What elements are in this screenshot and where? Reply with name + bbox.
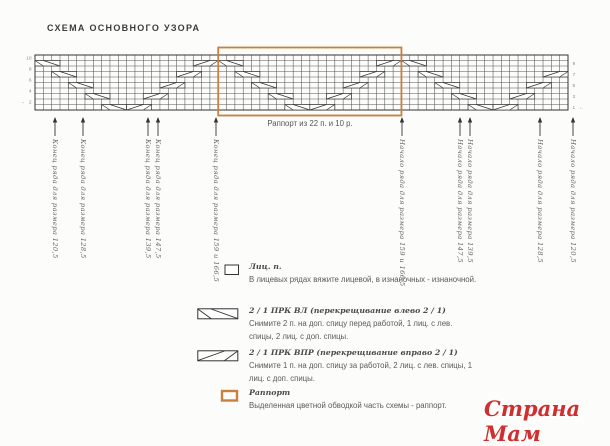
svg-text:←: ← bbox=[579, 106, 584, 111]
size-marker-label: Конец ряда для размера 159 и 166,5 bbox=[212, 139, 220, 282]
size-marker-label: Начало ряда для размера 128,5 bbox=[536, 139, 544, 263]
legend-desc: В лицевых рядах вяжите лицевой, в изнано… bbox=[249, 274, 477, 287]
site-watermark: Страна Мам bbox=[484, 396, 610, 446]
legend-desc: Выделенная цветной обводкой часть схемы … bbox=[249, 400, 477, 413]
size-marker-label: Начало ряда для размера 147,5 bbox=[456, 139, 464, 263]
svg-text:2: 2 bbox=[29, 100, 32, 106]
svg-text:5: 5 bbox=[573, 83, 576, 89]
svg-text:1: 1 bbox=[573, 105, 576, 111]
size-marker-label: Конец ряда для размера 147,5 bbox=[154, 139, 162, 259]
legend-title: 2 / 1 ПРК ВЛ (перекрещивание влево 2 / 1… bbox=[249, 306, 557, 315]
legend-title: Лиц. п. bbox=[249, 262, 557, 271]
size-marker-label: Начало ряда для размера 120,5 bbox=[569, 139, 577, 263]
rapport-caption: Раппорт из 22 п. и 10 р. bbox=[218, 119, 402, 128]
legend-desc: Снимите 2 п. на доп. спицу перед работой… bbox=[249, 318, 477, 344]
size-marker-label: Конец ряда для размера 128,5 bbox=[79, 139, 87, 259]
svg-text:8: 8 bbox=[29, 67, 32, 73]
size-marker-label: Конец ряда для размера 120,5 bbox=[51, 139, 59, 259]
svg-text:4: 4 bbox=[29, 89, 32, 95]
legend-item-cable-left: 2 / 1 ПРК ВЛ (перекрещивание влево 2 / 1… bbox=[197, 306, 557, 344]
svg-text:7: 7 bbox=[573, 72, 576, 78]
size-marker-label: Начало ряда для размера 139,5 bbox=[466, 139, 474, 263]
size-marker-label: Конец ряда для размера 139,5 bbox=[144, 139, 152, 259]
svg-text:6: 6 bbox=[29, 78, 32, 84]
svg-text:9: 9 bbox=[573, 61, 576, 67]
legend-desc: Снимите 1 п. на доп. спицу за работой, 2… bbox=[249, 360, 477, 386]
legend-title: 2 / 1 ПРК ВПР (перекрещивание вправо 2 /… bbox=[249, 348, 557, 357]
cable-right-symbol bbox=[197, 349, 239, 366]
legend-item-knit: Лиц. п. В лицевых рядах вяжите лицевой, … bbox=[197, 262, 557, 287]
svg-text:3: 3 bbox=[573, 94, 576, 100]
cable-left-symbol bbox=[197, 307, 239, 324]
svg-text:10: 10 bbox=[26, 56, 32, 62]
svg-text:→: → bbox=[20, 101, 25, 106]
rapport-symbol bbox=[220, 389, 240, 408]
knit-stitch-symbol bbox=[224, 263, 240, 281]
legend-item-cable-right: 2 / 1 ПРК ВПР (перекрещивание вправо 2 /… bbox=[197, 348, 557, 386]
